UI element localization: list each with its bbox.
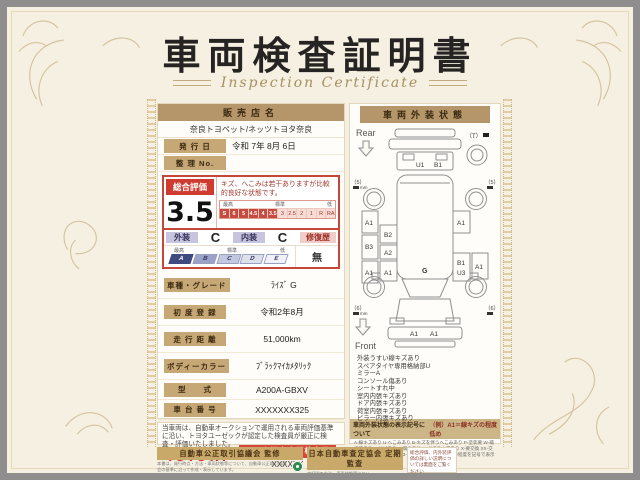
rear-direction-label: Rear xyxy=(356,128,376,138)
scale-cell: 6 xyxy=(229,209,239,218)
rating-scale-cells: S 6 5 4.5 4 3.5 3 2.5 2 1 R xyxy=(220,208,335,218)
page-subtitle: Inspection Certificate xyxy=(7,75,633,91)
rating-score-column: 総合評価 3.5 xyxy=(164,177,217,228)
panel-label-tailgate-u1: U1 xyxy=(416,162,425,169)
panel-label-left-inner-2: A2 xyxy=(384,250,392,257)
chassis-no-label: 車 台 番 号 xyxy=(164,403,226,417)
jaai-audit-title: 日本自動車査定協会 定期監査 xyxy=(307,447,403,470)
tread-front-right: （6） xyxy=(485,305,499,312)
condition-item: 外装うすい線キズあり xyxy=(357,355,498,363)
car-top-view-diagram: Rear Front （T） xyxy=(350,125,500,353)
grade-section: 外装 C 内装 C 修復歴 最高 標準 低 xyxy=(164,228,338,267)
rating-scale: 最高 標準 低 S 6 5 4.5 4 3.5 3 xyxy=(219,200,336,219)
interior-grade-value: C xyxy=(267,230,298,245)
exterior-grade-value: C xyxy=(200,230,231,245)
scale-cell: 3 xyxy=(277,209,287,218)
mileage-value: 51,000km xyxy=(226,334,338,344)
interior-grade-label: 内装 xyxy=(233,232,265,243)
fair-trade-council-title: 自動車公正取引協議会 監修 xyxy=(157,447,303,460)
scale-label-standard: 標準 xyxy=(275,201,285,208)
letter-label-low: 低 xyxy=(280,247,285,254)
fair-trade-council-block: 自動車公正取引協議会 監修 本書は、発行時点・方法・車両状態等について、自動車公… xyxy=(157,447,303,472)
parchment-background: 車両検査証明書 Inspection Certificate 販売店名 奈良トヨ… xyxy=(7,7,633,473)
panel-label-right-inner-2: B1 xyxy=(457,260,465,267)
scale-label-high: 最高 xyxy=(223,201,233,208)
condition-item: ドア内張キズあり xyxy=(357,400,498,408)
scale-cell: 4 xyxy=(258,209,268,218)
letter-label-standard: 標準 xyxy=(227,247,237,254)
fair-trade-council-body: 本書は、発行時点・方法・車両状態等について、自動車公正取引協議会の基準に沿って作… xyxy=(157,460,303,472)
scale-cell: 2.5 xyxy=(287,209,297,218)
inspection-note: 当車両は、自動車オークションで運用される車両評価基準に沿い、トヨタユーゼックが認… xyxy=(157,422,345,445)
grade-segment: A xyxy=(168,254,194,264)
exterior-condition-panel: 車両外装状態 Rear Front （T） xyxy=(349,103,501,444)
rating-detail-column: キズ、へこみは若干ありますが比較的良好な状態です。 最高 標準 低 S 6 5 xyxy=(217,177,338,228)
first-registration-label: 初 度 登 録 xyxy=(164,305,226,319)
condition-list: 外装うすい線キズあり スペアタイヤ専用格納部U ミラーA コンソール傷あり シー… xyxy=(350,353,500,419)
repair-history-value: 無 xyxy=(295,246,338,267)
grade-scale-row: 最高 標準 低 A B C D E xyxy=(164,246,338,267)
exterior-grade-label: 外装 xyxy=(166,232,198,243)
lace-border-left xyxy=(147,99,156,447)
chassis-no-value: XXXXXXX325 xyxy=(226,405,338,415)
first-registration-row: 初 度 登 録 令和2年8月 xyxy=(158,299,344,326)
fair-trade-council-text: 本書は、発行時点・方法・車両状態等について、自動車公正取引協議会の基準に沿って作… xyxy=(157,461,289,472)
grade-row: 外装 C 内装 C 修復歴 xyxy=(164,230,338,246)
letter-grade-segments: A B C D E xyxy=(170,254,289,264)
panel-label-left-inner-3: A1 xyxy=(384,270,392,277)
evaluation-box: 総合評価 3.5 キズ、へこみは若干ありますが比較的良好な状態です。 最高 標準… xyxy=(162,175,340,269)
grade-segment: D xyxy=(240,254,266,264)
jaai-audit-text: 本証明の方法・車両状態等について、日本自動車査定協会による定期監査を実施していま… xyxy=(307,471,377,473)
overall-rating: 総合評価 3.5 キズ、へこみは若干ありますが比較的良好な状態です。 最高 標準… xyxy=(164,177,338,228)
tread-unit: mm xyxy=(360,311,368,316)
condition-item: シートすれ中 xyxy=(357,385,498,393)
reference-no-label: 整 理 No. xyxy=(164,156,226,170)
spare-tire-label: （T） xyxy=(466,133,482,140)
certificate-page: 車両検査証明書 Inspection Certificate 販売店名 奈良トヨ… xyxy=(0,0,640,480)
scale-cell-current: 3.5 xyxy=(267,209,277,218)
front-direction-label: Front xyxy=(355,341,377,351)
rating-label: 総合評価 xyxy=(166,179,214,195)
issue-date-row: 発 行 日 令和 7年 8月 6日 xyxy=(158,138,344,155)
scale-cell: RA xyxy=(325,209,335,218)
dealer-name: 奈良トヨペット/ネッツトヨタ奈良 xyxy=(158,121,344,138)
panel-label-left-outer-2: B3 xyxy=(365,244,373,251)
issue-date-label: 発 行 日 xyxy=(164,139,226,153)
scale-cell: 1 xyxy=(306,209,316,218)
scale-cell: 5 xyxy=(238,209,248,218)
rating-comment: キズ、へこみは若干ありますが比較的良好な状態です。 xyxy=(219,179,336,200)
letter-label-high: 最高 xyxy=(174,247,184,254)
fair-trade-council-logo-icon xyxy=(292,461,303,472)
repair-history-label: 修復歴 xyxy=(300,232,336,243)
panel-label-tailgate-b1: B1 xyxy=(434,162,442,169)
car-diagram-area: Rear Front （T） xyxy=(350,125,500,353)
grade-segment: B xyxy=(192,254,218,264)
symbol-legend-header: 車両外装状態の表示記号について （例）A1＝線キズの程度低め xyxy=(350,419,500,439)
scale-label-low: 低 xyxy=(327,201,332,208)
scale-cell: 2 xyxy=(296,209,306,218)
model-code-row: 型 式 A200A-GBXV xyxy=(158,380,344,400)
panel-label-bumper-2: A1 xyxy=(430,331,438,338)
tread-unit: mm xyxy=(360,185,368,190)
exterior-condition-header: 車両外装状態 xyxy=(360,106,490,123)
condition-item: ミラーA xyxy=(357,370,498,378)
first-registration-value: 令和2年8月 xyxy=(226,306,338,318)
panel-label-right-outer-1: A1 xyxy=(475,264,483,271)
scale-cell: R xyxy=(316,209,326,218)
back-side-note: 総合評価、内外装評価の詳しい説明については裏面をご覧ください xyxy=(407,447,457,473)
vehicle-info-panel: 販売店名 奈良トヨペット/ネッツトヨタ奈良 発 行 日 令和 7年 8月 6日 … xyxy=(157,103,345,419)
jaai-audit-body: 本証明の方法・車両状態等について、日本自動車査定協会による定期監査を実施していま… xyxy=(307,470,403,473)
condition-item: スペアタイヤ専用格納部U xyxy=(357,363,498,371)
grade-segment: E xyxy=(264,254,290,264)
panel-label-bumper-1: A1 xyxy=(410,331,418,338)
grade-segment: C xyxy=(216,254,242,264)
chassis-no-row: 車 台 番 号 XXXXXXX325 xyxy=(158,400,344,420)
scale-cell: 4.5 xyxy=(248,209,258,218)
panel-label-right-inner-1: A1 xyxy=(457,220,465,227)
body-color-row: ボディーカラー ﾌﾞﾗｯｸﾏｲｶﾒﾀﾘｯｸ xyxy=(158,353,344,380)
letter-grade-ribbon: 最高 標準 低 A B C D E xyxy=(164,246,295,267)
dealer-header: 販売店名 xyxy=(158,104,344,121)
issue-date-value: 令和 7年 8月 6日 xyxy=(226,140,338,152)
page-title: 車両検査証明書 xyxy=(7,25,633,80)
scale-cell: S xyxy=(220,209,229,218)
tread-rear-right: （5） xyxy=(485,179,499,186)
spare-tire-icon xyxy=(467,145,487,165)
panel-label-right-inner-3: U3 xyxy=(457,270,466,277)
model-code-label: 型 式 xyxy=(164,383,226,397)
model-grade-row: 車種・グレード ﾗｲｽﾞ G xyxy=(158,272,344,299)
rating-score: 3.5 xyxy=(164,197,216,228)
jaai-audit-block: 日本自動車査定協会 定期監査 本証明の方法・車両状態等について、日本自動車査定協… xyxy=(307,447,403,473)
model-grade-label: 車種・グレード xyxy=(164,278,230,292)
panel-label-left-outer-1: A1 xyxy=(365,220,373,227)
symbol-legend-example: （例）A1＝線キズの程度低め xyxy=(429,420,497,438)
symbol-legend-title: 車両外装状態の表示記号について xyxy=(353,420,429,438)
letter-grade-labels: 最高 標準 低 xyxy=(170,247,289,254)
lace-border-right xyxy=(503,99,512,447)
rating-scale-labels: 最高 標準 低 xyxy=(220,201,335,208)
reference-no-row: 整 理 No. xyxy=(158,155,344,172)
body-color-label: ボディーカラー xyxy=(164,359,229,373)
model-grade-value: ﾗｲｽﾞ G xyxy=(230,279,339,291)
panel-label-left-inner-1: B2 xyxy=(384,232,392,239)
panel-label-hood-g: G xyxy=(422,268,428,275)
body-color-value: ﾌﾞﾗｯｸﾏｲｶﾒﾀﾘｯｸ xyxy=(229,360,338,372)
model-code-value: A200A-GBXV xyxy=(226,385,338,395)
mileage-row: 走 行 距 離 51,000km xyxy=(158,326,344,353)
mileage-label: 走 行 距 離 xyxy=(164,332,226,346)
